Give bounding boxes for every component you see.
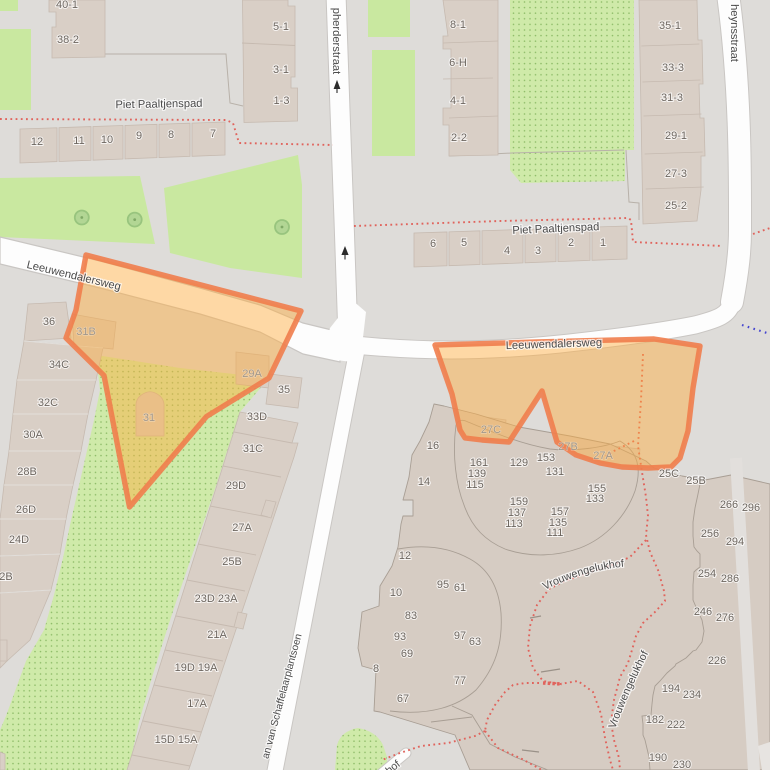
svg-text:190: 190 bbox=[649, 752, 667, 764]
svg-text:3: 3 bbox=[535, 245, 541, 257]
svg-text:1: 1 bbox=[600, 237, 606, 249]
svg-text:8-1: 8-1 bbox=[450, 19, 466, 31]
svg-text:21A: 21A bbox=[207, 629, 227, 641]
svg-text:30A: 30A bbox=[23, 429, 43, 441]
svg-text:29D: 29D bbox=[226, 480, 246, 492]
svg-text:12: 12 bbox=[399, 550, 411, 562]
svg-text:pherderstraat: pherderstraat bbox=[330, 8, 342, 75]
svg-text:5-1: 5-1 bbox=[273, 21, 289, 33]
svg-text:Piet Paaltjenspad: Piet Paaltjenspad bbox=[115, 98, 202, 112]
svg-text:27B: 27B bbox=[558, 441, 578, 453]
svg-text:230: 230 bbox=[673, 759, 691, 770]
svg-text:34C: 34C bbox=[49, 359, 69, 371]
svg-text:16: 16 bbox=[427, 440, 439, 452]
svg-text:222: 222 bbox=[667, 719, 685, 731]
svg-text:6: 6 bbox=[430, 238, 436, 250]
svg-text:83: 83 bbox=[405, 610, 417, 622]
svg-text:182: 182 bbox=[646, 714, 664, 726]
svg-text:26D: 26D bbox=[16, 504, 36, 516]
svg-text:294: 294 bbox=[726, 536, 744, 548]
svg-text:31B: 31B bbox=[76, 326, 96, 338]
svg-text:36: 36 bbox=[43, 316, 55, 328]
svg-text:7: 7 bbox=[210, 128, 216, 140]
svg-text:27A: 27A bbox=[593, 450, 613, 462]
svg-text:31: 31 bbox=[143, 412, 155, 424]
svg-text:12: 12 bbox=[31, 136, 43, 148]
svg-text:19D 19A: 19D 19A bbox=[175, 662, 218, 674]
svg-text:2: 2 bbox=[568, 237, 574, 249]
svg-text:77: 77 bbox=[454, 675, 466, 687]
svg-text:115: 115 bbox=[466, 479, 484, 491]
svg-text:25B: 25B bbox=[222, 556, 242, 568]
svg-text:25C: 25C bbox=[659, 468, 679, 480]
svg-text:61: 61 bbox=[454, 582, 466, 594]
svg-text:10: 10 bbox=[101, 134, 113, 146]
svg-text:113: 113 bbox=[505, 518, 523, 530]
svg-text:246: 246 bbox=[694, 606, 712, 618]
svg-text:111: 111 bbox=[547, 527, 564, 539]
svg-text:234: 234 bbox=[683, 689, 701, 701]
svg-text:40-1: 40-1 bbox=[56, 0, 78, 11]
svg-text:17A: 17A bbox=[187, 698, 207, 710]
svg-text:1-3: 1-3 bbox=[274, 95, 290, 107]
svg-text:33-3: 33-3 bbox=[662, 62, 684, 74]
svg-text:29A: 29A bbox=[242, 368, 262, 380]
svg-text:93: 93 bbox=[394, 631, 406, 643]
svg-text:14: 14 bbox=[418, 476, 430, 488]
svg-text:24D: 24D bbox=[9, 534, 29, 546]
svg-text:4: 4 bbox=[504, 245, 510, 257]
svg-text:10: 10 bbox=[390, 587, 402, 599]
svg-text:194: 194 bbox=[662, 683, 680, 695]
svg-text:35-1: 35-1 bbox=[659, 20, 681, 32]
svg-text:15D 15A: 15D 15A bbox=[155, 734, 198, 746]
svg-text:31-3: 31-3 bbox=[661, 92, 683, 104]
svg-text:69: 69 bbox=[401, 648, 413, 660]
svg-text:296: 296 bbox=[742, 502, 760, 514]
svg-text:8: 8 bbox=[373, 663, 379, 675]
svg-text:2-2: 2-2 bbox=[451, 132, 467, 144]
svg-text:3-1: 3-1 bbox=[273, 64, 289, 76]
svg-text:38-2: 38-2 bbox=[57, 34, 79, 46]
svg-text:27-3: 27-3 bbox=[665, 168, 687, 180]
svg-text:5: 5 bbox=[461, 237, 467, 249]
svg-text:31C: 31C bbox=[243, 443, 263, 455]
svg-text:32C: 32C bbox=[38, 397, 58, 409]
svg-text:6-H: 6-H bbox=[449, 57, 467, 69]
svg-text:286: 286 bbox=[721, 573, 739, 585]
svg-text:266: 266 bbox=[720, 499, 738, 511]
svg-text:129: 129 bbox=[510, 457, 528, 469]
svg-text:8: 8 bbox=[168, 129, 174, 141]
svg-text:11: 11 bbox=[73, 135, 84, 147]
svg-text:67: 67 bbox=[397, 693, 409, 705]
svg-text:33D: 33D bbox=[247, 411, 267, 423]
svg-text:28B: 28B bbox=[17, 466, 37, 478]
svg-text:153: 153 bbox=[537, 452, 555, 464]
svg-text:27A: 27A bbox=[232, 522, 252, 534]
svg-text:23D 23A: 23D 23A bbox=[195, 593, 238, 605]
svg-text:256: 256 bbox=[701, 528, 719, 540]
svg-text:276: 276 bbox=[716, 612, 734, 624]
svg-text:95: 95 bbox=[437, 579, 449, 591]
svg-text:2B: 2B bbox=[0, 571, 13, 583]
svg-text:35: 35 bbox=[278, 384, 290, 396]
svg-text:29-1: 29-1 bbox=[665, 130, 687, 142]
svg-text:254: 254 bbox=[698, 568, 716, 580]
svg-text:131: 131 bbox=[546, 466, 564, 478]
svg-text:226: 226 bbox=[708, 655, 726, 667]
svg-text:97: 97 bbox=[454, 630, 466, 642]
svg-text:133: 133 bbox=[586, 493, 604, 505]
svg-text:25B: 25B bbox=[686, 475, 706, 487]
svg-text:4-1: 4-1 bbox=[450, 95, 466, 107]
svg-text:heynsstraat: heynsstraat bbox=[728, 4, 740, 63]
svg-text:25-2: 25-2 bbox=[665, 200, 687, 212]
svg-text:63: 63 bbox=[469, 636, 481, 648]
svg-text:9: 9 bbox=[136, 130, 142, 142]
svg-text:27C: 27C bbox=[481, 424, 501, 436]
